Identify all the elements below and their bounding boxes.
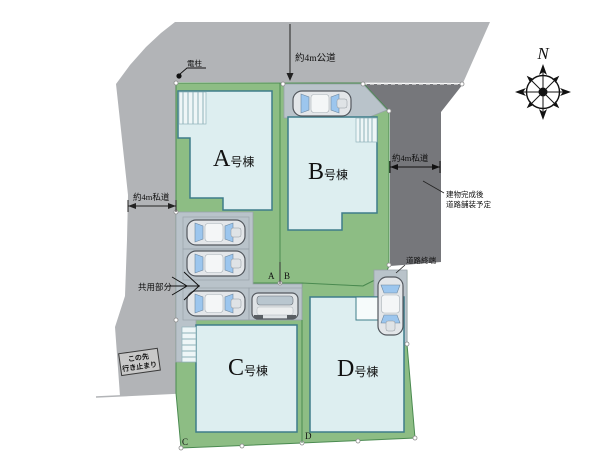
building-a-stairs (179, 92, 206, 124)
compass-north-label: N (536, 44, 550, 63)
car-icon (187, 220, 245, 245)
dead-end-sign: この先 行き止まり (119, 348, 161, 375)
utility-pole-label: 電柱 (187, 58, 202, 68)
right-road-label: 約4m私道 (392, 153, 429, 163)
utility-pole-dot-icon (176, 73, 181, 78)
road-end-label: 道路終端 (406, 255, 436, 265)
paving-note-line2: 道路舗装予定 (446, 199, 491, 209)
shared-area-label: 共用部分 (138, 282, 173, 292)
car-icon (378, 277, 403, 335)
paving-note-line1: 建物完成後 (446, 189, 484, 199)
building-c-stairs (182, 327, 196, 362)
left-road-label: 約4m私道 (133, 192, 170, 202)
marker-d: D (305, 431, 312, 441)
building-c (196, 325, 297, 432)
site-plan-drawing: A B C D A号棟 B号棟 C号棟 D号棟 約4m公道 約4m私道 約4m私… (0, 0, 600, 468)
car-icon (187, 251, 245, 276)
car-icon (293, 91, 351, 116)
top-road-label: 約4m公道 (295, 52, 336, 64)
building-b-stairs (356, 118, 377, 142)
car-icon (187, 291, 245, 316)
compass-icon: N (515, 44, 571, 120)
marker-a: A (268, 271, 275, 281)
site-plan: A B C D A号棟 B号棟 C号棟 D号棟 約4m公道 約4m私道 約4m私… (0, 0, 600, 468)
marker-c: C (182, 437, 188, 447)
car-rear-icon (252, 293, 298, 319)
building-d-porch (356, 297, 379, 320)
marker-b: B (284, 271, 290, 281)
